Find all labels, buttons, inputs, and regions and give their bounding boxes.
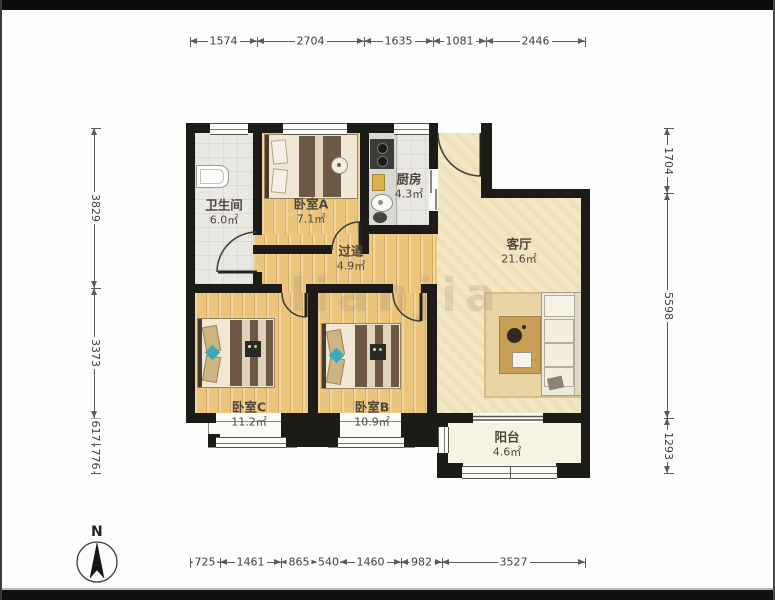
dimension-segment: 1461 xyxy=(220,556,281,570)
wall xyxy=(483,189,590,198)
wall xyxy=(186,284,282,293)
photo-bottom-bar xyxy=(0,588,775,600)
dimension-label: 1635 xyxy=(383,35,415,47)
compass-north-label: N xyxy=(91,524,103,540)
bathtub xyxy=(196,165,229,188)
dimension-label: 3527 xyxy=(498,556,530,568)
wall xyxy=(437,413,473,423)
dimension-segment: 617 xyxy=(88,418,102,444)
dimension-label: 1461 xyxy=(235,556,267,568)
kitchen-sliding-door xyxy=(429,169,438,211)
bed-b xyxy=(321,323,401,389)
wall xyxy=(437,463,463,478)
room-label-hallway: 过道4.9㎡ xyxy=(337,243,366,272)
room-label-balcony: 阳台4.6㎡ xyxy=(493,429,522,458)
dimension-label: 1574 xyxy=(208,35,240,47)
wall xyxy=(186,413,216,423)
dimension-segment: 865 xyxy=(281,556,317,570)
dimension-label: 5598 xyxy=(662,290,674,322)
dimension-segment: 540 xyxy=(317,556,340,570)
dimension-label: 1293 xyxy=(662,430,674,462)
dimension-segment: 3527 xyxy=(442,556,585,570)
wall xyxy=(186,123,195,423)
wall xyxy=(481,123,492,198)
wall xyxy=(429,211,438,234)
wall xyxy=(306,284,318,293)
wall xyxy=(543,413,581,423)
dimension-segment: 3373 xyxy=(88,288,102,418)
wall xyxy=(581,189,590,478)
wall xyxy=(429,123,438,169)
entry-floor xyxy=(437,133,483,413)
floorplan-image: lianjia xyxy=(0,0,775,600)
dimension-segment: 1574 xyxy=(190,35,257,49)
dimension-label: 3373 xyxy=(89,337,101,369)
bedroom-a-window xyxy=(283,123,347,135)
sofa xyxy=(541,292,584,396)
dimension-segment: 1704 xyxy=(661,128,675,193)
dimension-label: 865 xyxy=(287,556,312,568)
dimension-label: 540 xyxy=(316,556,341,568)
dimension-label: 1081 xyxy=(444,35,476,47)
dimension-label: 1704 xyxy=(662,145,674,177)
dimension-label: 2446 xyxy=(520,35,552,47)
wall xyxy=(360,225,438,234)
dimension-segment: 5598 xyxy=(661,193,675,418)
kitchen-window xyxy=(394,123,429,135)
dimension-segment: 725 xyxy=(190,556,220,570)
dimension-segment: 1293 xyxy=(661,418,675,473)
room-label-bedroom-a: 卧室A7.1㎡ xyxy=(294,196,329,225)
wall xyxy=(427,284,437,413)
dimension-segment: 2446 xyxy=(486,35,585,49)
bed-a xyxy=(264,134,358,199)
dimension-segment: 1460 xyxy=(340,556,401,570)
wall xyxy=(253,245,332,254)
dimension-segment: 1635 xyxy=(364,35,433,49)
bed-c xyxy=(197,318,275,388)
room-label-bathroom: 卫生间6.0㎡ xyxy=(205,197,243,226)
dimension-segment: 3829 xyxy=(88,128,102,288)
dimension-label: 3829 xyxy=(89,192,101,224)
wall xyxy=(318,284,393,293)
room-label-bedroom-b: 卧室B10.9㎡ xyxy=(354,399,390,428)
compass-icon xyxy=(73,538,121,586)
dimension-segment: 776 xyxy=(88,444,102,473)
dimension-label: 1460 xyxy=(355,556,387,568)
balcony-window xyxy=(462,466,557,479)
headboard xyxy=(265,135,269,198)
dimension-label: 982 xyxy=(409,556,434,568)
coffee-table xyxy=(499,316,541,374)
wall xyxy=(253,123,262,235)
dimension-segment: 982 xyxy=(401,556,442,570)
kitchen-counter xyxy=(369,133,397,225)
room-label-living: 客厅21.6㎡ xyxy=(501,236,537,265)
photo-top-bar xyxy=(0,0,775,10)
balcony-side-window xyxy=(438,427,449,453)
dimension-label: 617 xyxy=(89,419,101,444)
bathroom-window xyxy=(210,123,248,135)
wall xyxy=(556,463,590,478)
bay-window-c-glass xyxy=(216,437,286,448)
wall xyxy=(308,293,318,413)
dimension-label: 776 xyxy=(89,446,101,471)
dimension-label: 725 xyxy=(193,556,218,568)
wall xyxy=(360,123,369,254)
room-label-bedroom-c: 卧室C11.2㎡ xyxy=(231,399,267,428)
dimension-segment: 1081 xyxy=(433,35,486,49)
wall xyxy=(401,413,441,447)
stove xyxy=(370,139,394,169)
dimension-segment: 2704 xyxy=(257,35,364,49)
dimension-label: 2704 xyxy=(295,35,327,47)
room-label-kitchen: 厨房4.3㎡ xyxy=(395,171,424,200)
bay-window-b-glass xyxy=(338,437,404,448)
photo-left-edge xyxy=(0,0,2,600)
